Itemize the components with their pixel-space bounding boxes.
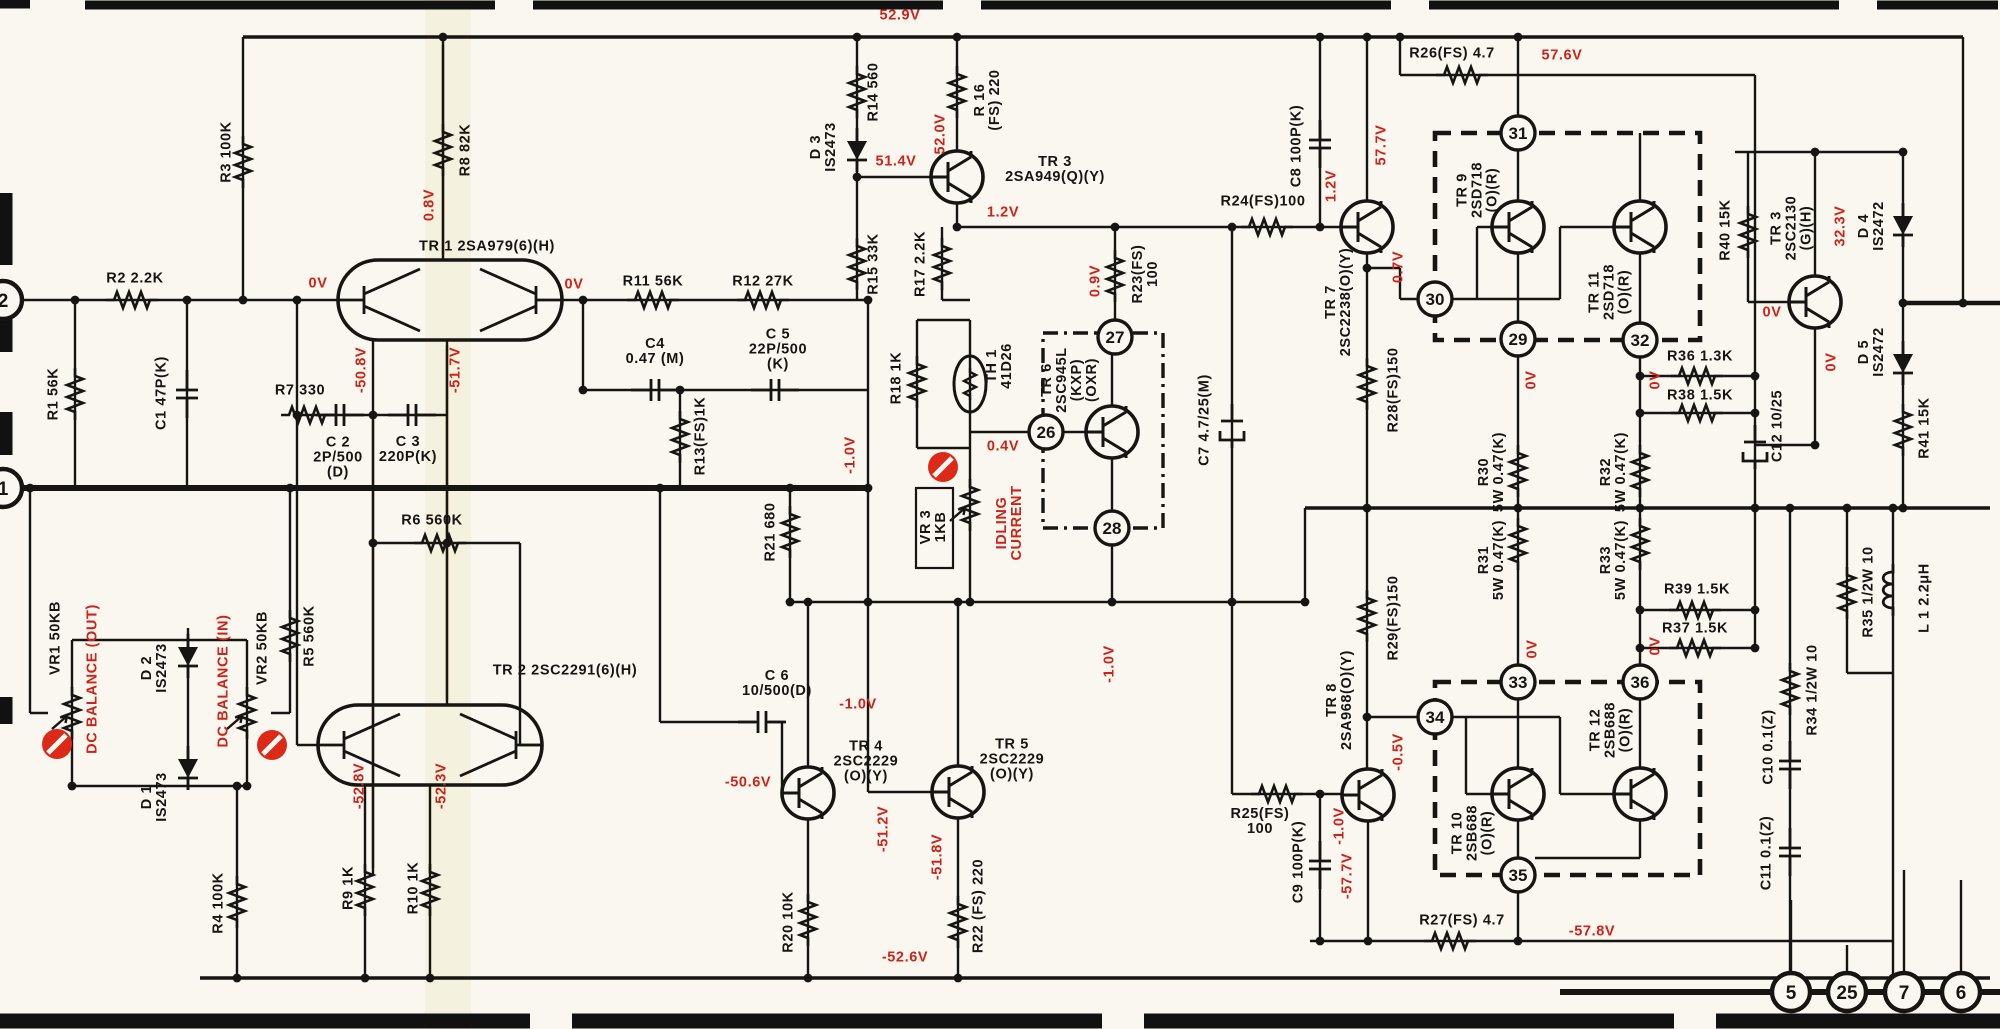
component-label: C1 47P(K): [154, 356, 169, 430]
terminal-5: 5: [1772, 973, 1810, 1011]
component-label: C 6 10/500(D): [742, 669, 812, 699]
junction-dot: [1301, 598, 1310, 607]
symbol-R14-res: [849, 66, 865, 118]
component-label: R20 10K: [781, 891, 796, 952]
svg-text:2: 2: [0, 291, 8, 312]
junction-dot: [239, 296, 248, 305]
junction-dot: [1751, 409, 1760, 418]
junction-dot: [1364, 937, 1373, 946]
voltage-label: 57.7V: [1374, 125, 1389, 166]
symbol-R34-res: [1782, 663, 1798, 715]
component-label: R27(FS) 4.7: [1419, 913, 1505, 928]
junction-dot: [1889, 504, 1898, 513]
component-label: R25(FS) 100: [1231, 807, 1290, 837]
component-label: TR 1 2SA979(6)(H): [419, 239, 555, 254]
junction-dot: [804, 974, 813, 983]
symbol-R1-res: [67, 368, 83, 420]
symbol-R10-res: [422, 864, 438, 916]
junction-dot: [1786, 504, 1795, 513]
component-label: R7 330: [275, 383, 325, 398]
terminal-2: 2: [0, 281, 22, 319]
symbol-R38-res: [1671, 405, 1723, 421]
junction-dot: [68, 782, 77, 791]
component-label: R21 680: [763, 502, 778, 561]
component-label: D 4 IS2472: [1857, 201, 1887, 251]
symbol-L1-coil: [1883, 564, 1893, 616]
junction-dot: [1959, 299, 1968, 308]
symbol-R37-res: [1669, 640, 1721, 656]
component-label: R38 1.5K: [1667, 388, 1733, 403]
component-label: R39 1.5K: [1664, 582, 1730, 597]
voltage-label: -1.0V: [843, 436, 858, 474]
component-label: VR2 50KB: [255, 611, 270, 685]
symbol-TR1-duo: [338, 260, 562, 340]
junction-dot: [1751, 504, 1760, 513]
symbol-TR8-tr: [1342, 769, 1394, 821]
symbol-R12-res: [737, 292, 789, 308]
component-label: TR 3 2SC2130 (G)(H): [1769, 196, 1814, 261]
symbol-R22-res: [950, 896, 966, 948]
symbol-R31-res: [1510, 518, 1526, 570]
component-label: D 3 IS2473: [809, 122, 839, 172]
component-label: L 1 2.2μH: [1917, 563, 1932, 633]
component-label: TR 8 2SA968(O)(Y): [1325, 650, 1355, 750]
symbol-R33-res: [1632, 518, 1648, 570]
junction-dot: [1899, 299, 1908, 308]
junction-dot: [1843, 504, 1852, 513]
component-label: R11 56K: [623, 274, 684, 289]
voltage-label: 0V: [1763, 305, 1782, 320]
symbol-TR3-tr: [931, 151, 983, 203]
voltage-label: 57.6V: [1542, 48, 1583, 63]
component-label: R5 560K: [302, 605, 317, 666]
pin-circle-33: 33: [1501, 665, 1535, 699]
symbol-R11-res: [627, 292, 679, 308]
symbol-R3-res: [235, 136, 251, 188]
junction-dot: [953, 223, 962, 232]
symbol-TR3R-tr: [1789, 276, 1841, 328]
adjust-screw-icon[interactable]: [42, 729, 72, 759]
svg-text:31: 31: [1509, 124, 1528, 143]
voltage-label: -50.8V: [354, 347, 369, 393]
svg-text:25: 25: [1836, 983, 1858, 1004]
voltage-label: -52.6V: [882, 950, 928, 965]
voltage-label: -1.0V: [839, 697, 877, 712]
junction-dot: [286, 484, 295, 493]
voltage-label: 0V: [309, 276, 328, 291]
component-label: R10 1K: [406, 862, 421, 915]
junction-dot: [293, 411, 302, 420]
junction-dot: [1228, 598, 1237, 607]
adjust-screw-icon[interactable]: [928, 452, 958, 482]
voltage-label: 0.9V: [1088, 265, 1103, 297]
junction-dot: [864, 296, 873, 305]
junction-dot: [233, 782, 242, 791]
junction-dot: [233, 974, 242, 983]
component-label: R34 1/2W 10: [1805, 644, 1820, 735]
symbol-R28-res: [1359, 358, 1375, 410]
pin-circle-28: 28: [1095, 511, 1129, 545]
junction-dot: [1316, 223, 1325, 232]
component-label: R9 1K: [341, 866, 356, 910]
voltage-label: -51.2V: [876, 806, 891, 852]
junction-dot: [1396, 33, 1405, 42]
junction-dot: [1636, 409, 1645, 418]
junction-dot: [1514, 504, 1523, 513]
junction-dot: [1899, 148, 1908, 157]
component-label: R13(FS)1K: [693, 397, 708, 476]
component-label: R28(FS)150: [1386, 348, 1401, 433]
svg-text:28: 28: [1103, 519, 1122, 538]
symbol-D1-dio: [178, 746, 198, 790]
pin-circle-26: 26: [1029, 415, 1063, 449]
pin-circle-30: 30: [1418, 282, 1452, 316]
junction-dot: [183, 296, 192, 305]
junction-dot: [1108, 598, 1117, 607]
junction-dot: [1316, 790, 1325, 799]
symbol-R29-res: [1359, 590, 1375, 642]
voltage-label: 0V: [1525, 640, 1540, 659]
component-label: TR 9 2SD718 (O)(R): [1455, 162, 1500, 218]
voltage-label: 0V: [565, 277, 584, 292]
pin-circle-34: 34: [1418, 700, 1452, 734]
junction-dot: [954, 598, 963, 607]
svg-text:32: 32: [1631, 331, 1650, 350]
junction-dot: [1751, 644, 1760, 653]
component-label: C9 100P(K): [1291, 821, 1306, 904]
pin-circle-32: 32: [1623, 323, 1657, 357]
component-label: R2 2.2K: [106, 271, 163, 286]
junction-dot: [1363, 33, 1372, 42]
junction-dot: [369, 539, 378, 548]
symbol-TR11-tr: [1614, 201, 1666, 253]
voltage-label: -1.0V: [1332, 807, 1347, 845]
terminal-7: 7: [1885, 973, 1923, 1011]
voltage-label: -57.7V: [1340, 853, 1355, 899]
junction-dot: [426, 974, 435, 983]
component-label: TR 7 2SC2238(O)(Y): [1324, 248, 1354, 357]
junction-dot: [293, 296, 302, 305]
adjust-screw-icon[interactable]: [257, 730, 287, 760]
symbol-R35-res: [1839, 567, 1855, 619]
component-label: R32 5W 0.47(K): [1599, 432, 1629, 512]
symbol-R26-res: [1436, 67, 1488, 83]
component-label: C11 0.1(Z): [1759, 816, 1774, 891]
group-adjust-screws: [42, 452, 958, 760]
component-label: TR 4 2SC2229 (O)(Y): [834, 739, 899, 784]
svg-text:7: 7: [1899, 983, 1910, 1004]
symbol-R2-res: [106, 292, 158, 308]
component-label: R3 100K: [219, 121, 234, 182]
symbol-D3-dio: [847, 128, 867, 172]
symbol-R9-res: [357, 864, 373, 916]
component-label: R17 2.2K: [913, 231, 928, 297]
symbol-R4-res: [229, 876, 245, 928]
junction-dot: [443, 539, 452, 548]
symbol-R24-res: [1241, 219, 1293, 235]
symbol-D4-dio: [1893, 203, 1913, 247]
component-label: R18 1K: [889, 352, 904, 405]
symbol-R39-res: [1669, 602, 1721, 618]
component-label: C4 0.47 (M): [626, 337, 685, 367]
junction-dot: [954, 974, 963, 983]
svg-text:27: 27: [1106, 328, 1125, 347]
junction-dot: [1316, 937, 1325, 946]
schematic-canvas: 2627282930313233343536 5257621 R3 100KR8…: [0, 0, 2000, 1029]
component-label: R41 15K: [1917, 397, 1932, 458]
component-label: C 2 2P/500 (D): [313, 435, 363, 480]
junction-dot: [1316, 33, 1325, 42]
symbol-TR12-tr: [1614, 768, 1666, 820]
symbol-TR5-tr: [932, 766, 984, 818]
voltage-label: -51.8V: [930, 834, 945, 880]
voltage-label: -0.5V: [1391, 733, 1406, 771]
component-label: R23(FS) 100: [1131, 245, 1161, 304]
component-label: C 3 220P(K): [379, 435, 437, 465]
voltage-label: 1.2V: [1324, 170, 1339, 202]
junction-dot: [786, 598, 795, 607]
voltage-label: 0.4V: [987, 439, 1019, 454]
component-label: R 16 (FS) 220: [973, 69, 1003, 130]
terminal-25: 25: [1828, 973, 1866, 1011]
junction-dot: [1811, 148, 1820, 157]
svg-text:1: 1: [0, 479, 9, 500]
symbol-TR7-tr: [1341, 201, 1393, 253]
junction-dot: [243, 782, 252, 791]
junction-dot: [1514, 937, 1523, 946]
symbol-TR6-tr: [1086, 406, 1138, 458]
junction-dot: [1636, 372, 1645, 381]
component-label: R30 5W 0.47(K): [1477, 432, 1507, 512]
voltage-label: -52.3V: [434, 763, 449, 809]
component-label: R4 100K: [211, 872, 226, 933]
symbol-R18-res: [909, 356, 925, 408]
junction-dot: [579, 296, 588, 305]
component-label: D 2 IS2473: [140, 643, 170, 693]
pin-circle-36: 36: [1623, 665, 1657, 699]
component-label: R1 56K: [46, 368, 61, 421]
svg-text:34: 34: [1426, 708, 1445, 727]
junction-dot: [853, 173, 862, 182]
component-label: R31 5W 0.47(K): [1477, 520, 1507, 600]
junction-dot: [1751, 606, 1760, 615]
terminal-6: 6: [1942, 973, 1980, 1011]
junction-dot: [1899, 504, 1908, 513]
symbol-D5-dio: [1893, 341, 1913, 385]
component-label: TR 5 2SC2229 (O)(Y): [980, 737, 1045, 782]
voltage-label: DC BALANCE (OUT): [85, 604, 100, 754]
voltage-label: 0.7V: [1391, 251, 1406, 283]
junction-dot: [369, 411, 378, 420]
junction-dot: [26, 484, 35, 493]
voltage-label: 0V: [1524, 371, 1539, 390]
pin-circle-29: 29: [1501, 322, 1535, 356]
component-label: C12 10/25: [1770, 390, 1785, 462]
pin-circle-27: 27: [1098, 320, 1132, 354]
svg-text:35: 35: [1509, 866, 1528, 885]
symbol-R40-res: [1740, 206, 1756, 258]
symbol-TR10-tr: [1492, 768, 1544, 820]
component-label: D 5 IS2472: [1857, 327, 1887, 377]
component-label: R33 5W 0.47(K): [1599, 520, 1629, 600]
symbol-R5-res: [282, 610, 298, 662]
component-label: TR 2 2SC2291(6)(H): [493, 663, 638, 678]
svg-text:5: 5: [1786, 983, 1797, 1004]
symbol-R30-res: [1510, 445, 1526, 497]
component-label: C10 0.1(Z): [1761, 709, 1776, 784]
junction-dot: [804, 598, 813, 607]
voltage-label: IDLING CURRENT: [995, 485, 1025, 560]
junction-dot: [786, 484, 795, 493]
terminal-1: 1: [0, 469, 22, 507]
junction-dot: [1111, 223, 1120, 232]
component-label: R22 (FS) 220: [971, 859, 986, 953]
junction-dot: [71, 296, 80, 305]
component-label: VR1 50KB: [48, 601, 63, 675]
component-label: R24(FS)100: [1221, 194, 1306, 209]
component-label: R40 15K: [1718, 199, 1733, 260]
junction-dot: [676, 386, 685, 395]
junction-dot: [1363, 504, 1372, 513]
svg-text:29: 29: [1509, 330, 1528, 349]
voltage-label: -50.6V: [725, 775, 771, 790]
junction-dot: [864, 598, 873, 607]
pin-circle-35: 35: [1501, 858, 1535, 892]
symbol-VR3-pot: [950, 479, 978, 531]
voltage-label: 1.2V: [987, 205, 1019, 220]
junction-dot: [953, 33, 962, 42]
junction-dot: [1363, 713, 1372, 722]
component-label: TH 1 41D26: [985, 343, 1015, 389]
symbol-TR4-tr: [782, 767, 834, 819]
component-label: R12 27K: [732, 274, 793, 289]
voltage-label: 0V: [1648, 371, 1663, 390]
svg-text:26: 26: [1037, 423, 1056, 442]
junction-dot: [1363, 264, 1372, 273]
junction-dot: [853, 33, 862, 42]
symbol-C6-cap: [738, 711, 786, 733]
component-label: C8 100P(K): [1289, 105, 1304, 188]
component-label: R29(FS)150: [1386, 576, 1401, 661]
junction-dot: [1751, 372, 1760, 381]
junction-dot: [1514, 33, 1523, 42]
symbol-R41-res: [1895, 404, 1911, 456]
svg-text:30: 30: [1426, 290, 1445, 309]
component-label: R35 1/2W 10: [1861, 546, 1876, 637]
symbol-R21-res: [782, 506, 798, 558]
junction-dot: [1636, 644, 1645, 653]
component-label: R6 560K: [401, 513, 462, 528]
junction-dot: [656, 484, 665, 493]
component-label: R8 82K: [458, 124, 473, 177]
voltage-label: -51.7V: [448, 347, 463, 393]
symbol-R13-res: [672, 411, 688, 463]
symbol-R27-res: [1424, 933, 1476, 949]
voltage-label: -57.8V: [1569, 924, 1615, 939]
svg-text:6: 6: [1956, 983, 1967, 1004]
junction-dot: [966, 598, 975, 607]
voltage-label: 0.8V: [422, 189, 437, 221]
voltage-label: 51.4V: [876, 154, 917, 169]
voltage-label: DC BALANCE (IN): [216, 614, 231, 747]
voltage-label: 0V: [1824, 353, 1839, 372]
symbol-R6-res: [414, 535, 466, 551]
component-label: R15 33K: [866, 233, 881, 294]
svg-text:33: 33: [1509, 673, 1528, 692]
voltage-label: -52.8V: [352, 763, 367, 809]
junction-dot: [579, 386, 588, 395]
voltage-label: 0V: [1648, 637, 1663, 656]
voltage-label: -1.0V: [1102, 645, 1117, 683]
component-label: C 5 22P/500 (K): [749, 327, 807, 372]
component-label: TR 3 2SA949(Q)(Y): [1005, 155, 1105, 185]
symbol-R20-res: [800, 894, 816, 946]
symbol-R32-res: [1632, 445, 1648, 497]
component-label: TR 12 2SB688 (O)(R): [1588, 702, 1633, 758]
symbol-R15-res: [849, 238, 865, 290]
component-label: TR 6 2SC945L (KXP) (OXR): [1040, 347, 1100, 412]
component-label: TR 11 2SD718 (O)(R): [1587, 264, 1632, 320]
voltage-label: 52.0V: [933, 114, 948, 155]
symbol-R36-res: [1671, 368, 1723, 384]
symbol-R17-res: [934, 238, 950, 290]
component-label: R37 1.5K: [1662, 621, 1728, 636]
component-label: D 1 IS2473: [140, 772, 170, 822]
voltage-label: 32.3V: [1833, 206, 1848, 247]
component-label: C7 4.7/25(M): [1197, 374, 1212, 466]
symbol-R25-res: [1251, 786, 1303, 802]
junction-dot: [1636, 504, 1645, 513]
svg-text:36: 36: [1631, 673, 1650, 692]
junction-dot: [439, 33, 448, 42]
component-label: TR 10 2SB688 (O)(R): [1450, 805, 1495, 861]
component-label: R14 560: [866, 62, 881, 121]
junction-dot: [1636, 606, 1645, 615]
component-label: R26(FS) 4.7: [1409, 46, 1495, 61]
junction-dot: [1228, 223, 1237, 232]
pin-circle-31: 31: [1501, 116, 1535, 150]
symbol-R8-res: [435, 124, 451, 176]
junction-dot: [1811, 441, 1820, 450]
junction-dot: [361, 974, 370, 983]
symbol-R16-res: [949, 66, 965, 118]
junction-dot: [864, 484, 873, 493]
component-label: VR 3 1KB: [919, 510, 949, 545]
symbol-R23-res: [1107, 250, 1123, 302]
voltage-label: 52.9V: [880, 8, 921, 23]
component-label: R36 1.3K: [1667, 349, 1733, 364]
